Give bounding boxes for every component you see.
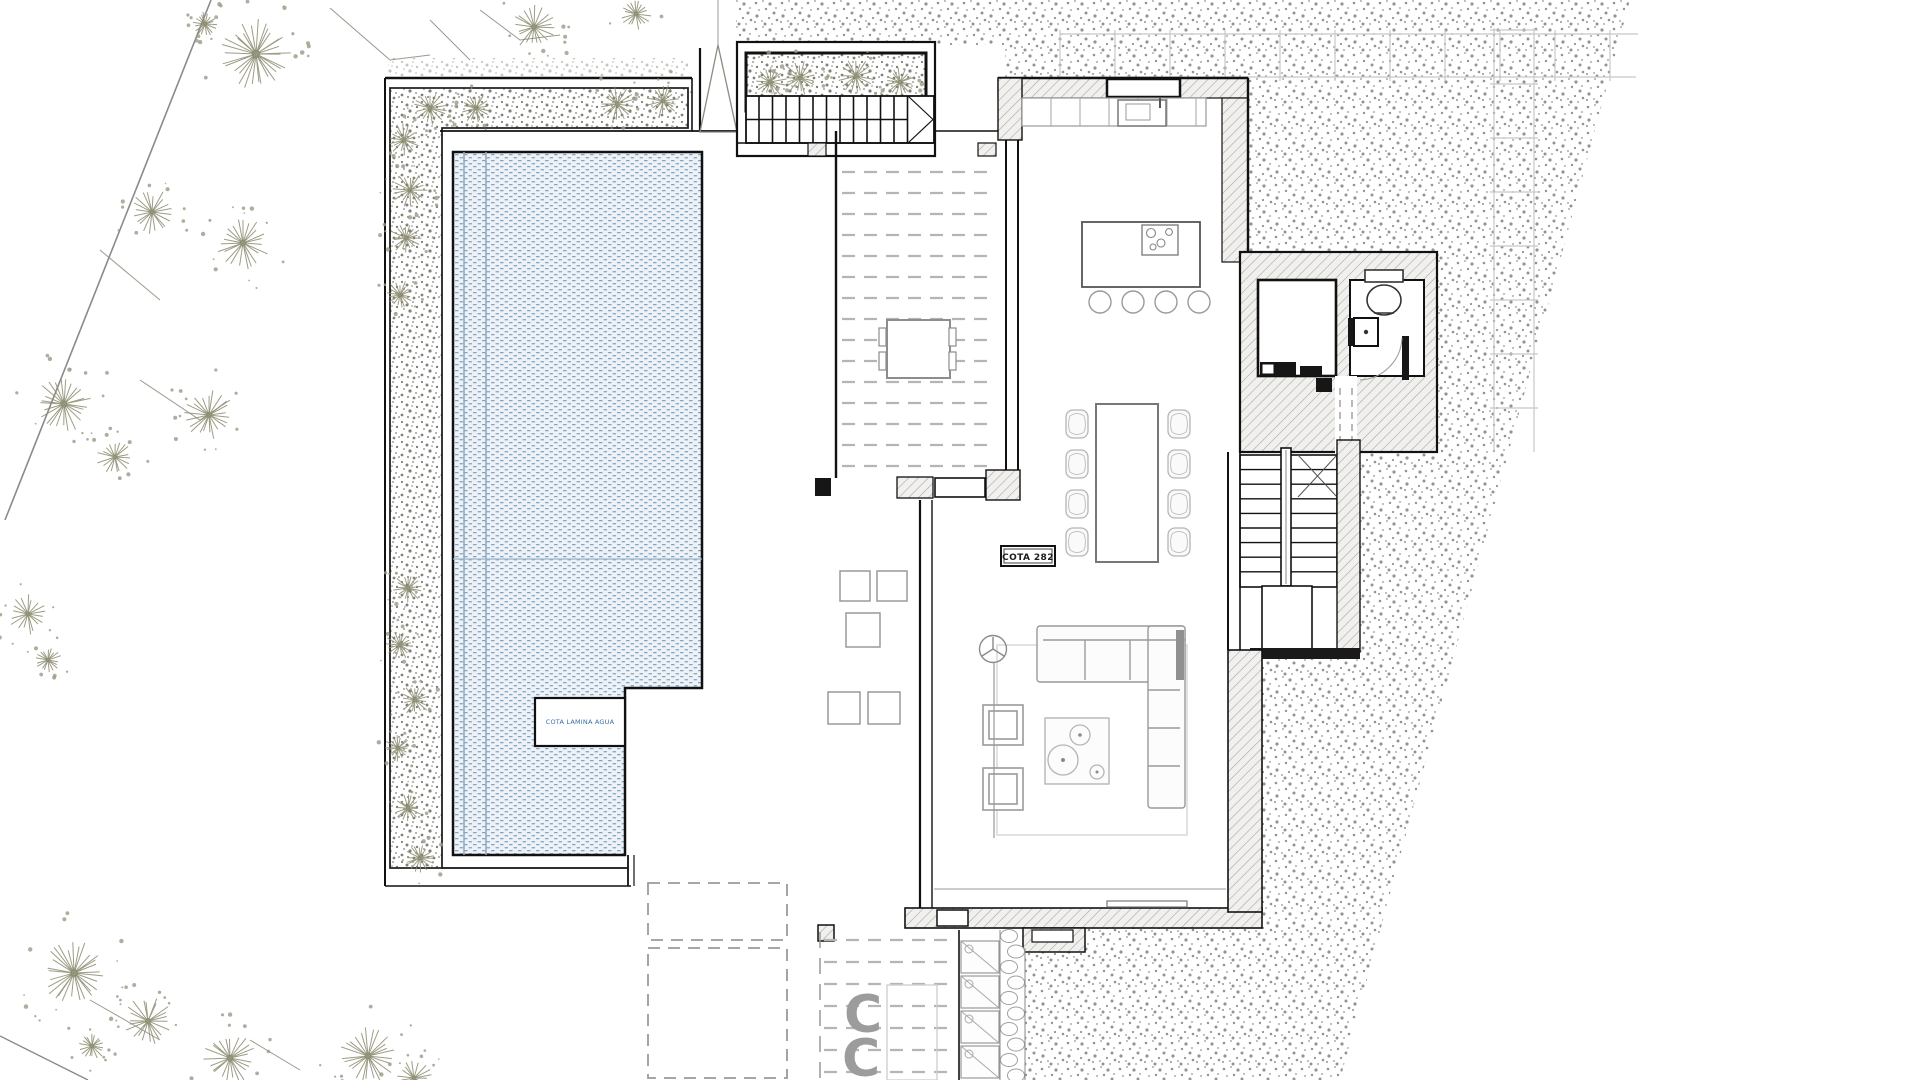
terrace-col-black bbox=[815, 478, 831, 496]
dandelion-tree bbox=[0, 583, 54, 650]
kitchen-counter bbox=[1022, 98, 1206, 126]
terrace-wall-hatch bbox=[897, 477, 933, 498]
utility-unit-small bbox=[1316, 378, 1332, 392]
kitchen bbox=[1022, 98, 1210, 313]
dandelion-tree bbox=[170, 368, 238, 451]
pool-spa-box: COTA LAMINA AGUA bbox=[535, 698, 625, 746]
pool-note: COTA LAMINA AGUA bbox=[546, 718, 615, 726]
dandelion-tree bbox=[189, 1012, 271, 1080]
sun-lounger bbox=[961, 976, 999, 1008]
terrace-wall-seg bbox=[935, 478, 985, 497]
wc-block bbox=[1240, 252, 1437, 455]
wall-kitchen-right bbox=[1222, 98, 1248, 262]
bar-stools bbox=[1089, 291, 1210, 313]
cypress-tree bbox=[700, 45, 737, 132]
site bbox=[0, 0, 1638, 1080]
kitchen-island bbox=[1082, 222, 1200, 287]
dandelion-tree bbox=[319, 1005, 412, 1080]
dandelion-tree bbox=[197, 0, 311, 88]
living-room bbox=[828, 571, 1187, 838]
armchair bbox=[983, 705, 1023, 745]
cota-label-box: COTA 282 bbox=[1001, 546, 1055, 566]
pool-terrace: COTA LAMINA AGUA bbox=[377, 0, 1004, 886]
dining-chair bbox=[1168, 528, 1190, 556]
dining-chair bbox=[1066, 528, 1088, 556]
floor-plan-page: COTA LAMINA AGUA bbox=[0, 0, 1920, 1080]
deck-lounge-squares bbox=[828, 571, 907, 724]
entry-column bbox=[978, 143, 996, 156]
utility-room bbox=[1258, 280, 1336, 376]
stair-bottom-wall bbox=[1250, 648, 1360, 659]
living-right-wall bbox=[1228, 650, 1262, 912]
washbasin bbox=[1348, 318, 1378, 346]
dining-chair bbox=[1168, 410, 1190, 438]
dandelion-tree bbox=[609, 0, 664, 30]
dining-chair bbox=[1168, 490, 1190, 518]
utility-unit bbox=[1300, 366, 1322, 376]
dandelion-tree bbox=[27, 637, 69, 680]
wall-corner-col bbox=[998, 78, 1022, 140]
dining-chair bbox=[1066, 410, 1088, 438]
window-sill-marker bbox=[1107, 901, 1187, 907]
entry-stair bbox=[746, 96, 934, 143]
terrace-corner-hatch bbox=[986, 470, 1020, 500]
floor-plan: COTA LAMINA AGUA bbox=[0, 0, 1920, 1080]
dining-table bbox=[1096, 404, 1158, 562]
boundary-line-left bbox=[5, 0, 211, 520]
kitchen-window bbox=[1107, 79, 1180, 97]
dandelion-tree bbox=[201, 206, 285, 289]
dandelion-tree bbox=[503, 2, 571, 57]
boundary-line-bottom-left bbox=[0, 1036, 88, 1080]
side-table-round bbox=[980, 636, 1007, 663]
cota-label: COTA 282 bbox=[1002, 553, 1054, 563]
armchair bbox=[983, 768, 1023, 810]
door-threshold bbox=[937, 910, 968, 926]
dining-area bbox=[1066, 404, 1190, 562]
top-gravel-strip bbox=[388, 58, 688, 76]
stair-right-wall bbox=[1337, 440, 1360, 652]
deck-c-glyph: C bbox=[842, 1029, 880, 1080]
outdoor-dining bbox=[879, 320, 956, 378]
stair-landing bbox=[1262, 586, 1312, 650]
sun-lounger bbox=[961, 1046, 999, 1078]
dining-chair bbox=[1066, 450, 1088, 478]
future-deck-outline bbox=[648, 883, 787, 1078]
dandelion-tree bbox=[15, 354, 109, 443]
sun-loungers bbox=[961, 941, 999, 1078]
pebble-strip bbox=[1001, 930, 1025, 1080]
sun-lounger bbox=[961, 941, 999, 973]
entry-column bbox=[808, 143, 826, 156]
dandelion-tree bbox=[71, 1034, 117, 1072]
dandelion-tree bbox=[86, 427, 149, 481]
dining-chair bbox=[1066, 490, 1088, 518]
interior-stair bbox=[1228, 440, 1360, 659]
pool bbox=[453, 152, 702, 855]
sun-lounger bbox=[961, 1011, 999, 1043]
entry-block bbox=[737, 42, 996, 156]
dandelion-tree bbox=[379, 1049, 439, 1080]
dining-chair bbox=[1168, 450, 1190, 478]
coffee-table bbox=[1045, 718, 1109, 784]
toilet bbox=[1365, 270, 1403, 315]
dandelion-tree bbox=[109, 983, 177, 1044]
deck-table-outline bbox=[887, 985, 937, 1080]
